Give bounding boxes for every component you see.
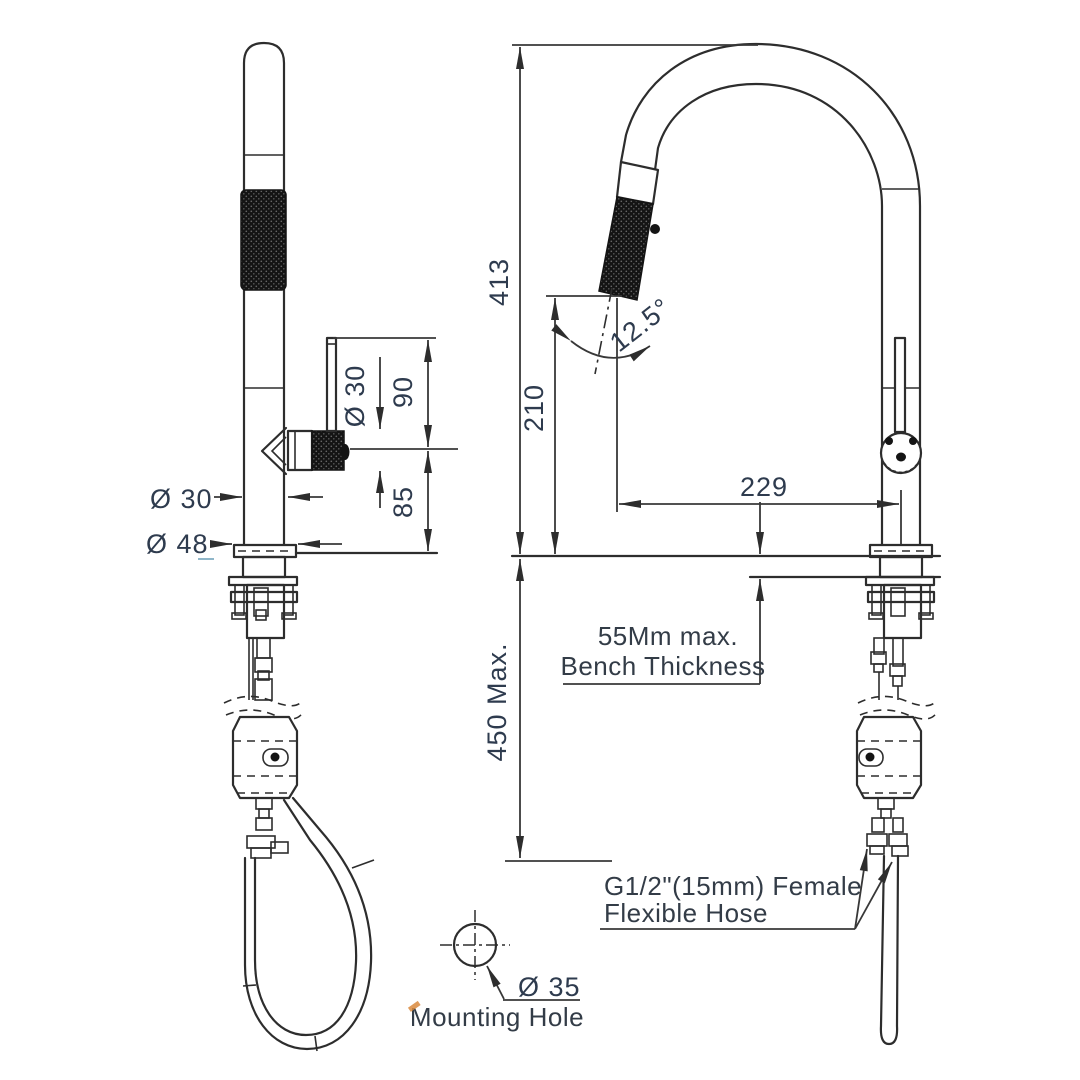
note-flexible-hose-line1: G1/2"(15mm) Female xyxy=(604,871,862,901)
dim-label-handle-diameter: Ø 30 xyxy=(340,365,370,428)
lever-ball-detail-left xyxy=(885,437,893,445)
mounting-hole-detail: Ø 35 Mounting Hole xyxy=(410,910,584,1032)
hose-weight-left xyxy=(233,717,297,798)
dimension-hose-drop: 450 Max. xyxy=(482,559,612,861)
joint-chevron-outer xyxy=(262,428,286,474)
dim-label-body-diameter: Ø 30 xyxy=(150,484,213,514)
dim-label-outlet-height: 210 xyxy=(519,384,549,432)
lever-ball-detail-right xyxy=(909,437,917,445)
dimension-bench-thickness: 55Mm max. Bench Thickness xyxy=(560,502,765,684)
long-flexible-hose xyxy=(881,856,898,1044)
dim-label-spout-reach: 229 xyxy=(740,472,788,502)
handle-knurled-knob xyxy=(312,431,344,470)
dim-label-hose-drop: 450 Max. xyxy=(482,642,512,761)
dimension-body-diameter: Ø 30 xyxy=(150,484,323,514)
dim-label-spray-angle: 12.5° xyxy=(604,292,676,358)
handle-collar xyxy=(288,431,312,470)
lever-rod xyxy=(327,338,336,431)
faucet-dimension-drawing: 413 210 12.5° 229 55Mm max. Bench Thickn… xyxy=(0,0,1080,1080)
dimension-spray-angle: 12.5° xyxy=(571,288,677,512)
underbench-mounting-right xyxy=(866,557,934,700)
spray-button xyxy=(650,224,660,234)
mixer-lever-rod xyxy=(895,338,905,432)
dimension-overall-height: 413 xyxy=(484,45,758,554)
hose-fittings-left xyxy=(247,798,288,858)
note-bench-thickness-line2: Bench Thickness xyxy=(560,651,765,681)
hose-segment-tick-1 xyxy=(352,860,374,868)
note-bench-thickness-line1: 55Mm max. xyxy=(598,621,738,651)
weight-clip-detail xyxy=(271,753,280,762)
wand-body-outline xyxy=(244,43,284,545)
dim-label-overall-height: 413 xyxy=(484,258,514,306)
hose-weight-right xyxy=(857,717,921,798)
dim-label-handle-height: 85 xyxy=(388,486,418,518)
dim-label-lever-span: 90 xyxy=(388,376,418,408)
technical-drawing-page: 413 210 12.5° 229 55Mm max. Bench Thickn… xyxy=(0,0,1080,1080)
underbench-mounting-left xyxy=(229,557,297,700)
handle-knob-tip xyxy=(341,444,350,460)
dim-label-mounting-hole-diameter: Ø 35 xyxy=(518,972,581,1002)
hose-segment-tick-2 xyxy=(243,985,256,986)
dimension-spout-reach: 229 xyxy=(619,472,899,504)
side-view-spray-wand xyxy=(224,43,437,1051)
note-flexible-hose: G1/2"(15mm) Female Flexible Hose xyxy=(600,849,892,929)
note-mounting-hole: Mounting Hole xyxy=(410,1002,584,1032)
spray-head-knurled-grip xyxy=(599,197,653,300)
flexible-hose-ends xyxy=(867,798,908,1044)
break-line-left-1 xyxy=(224,696,303,705)
dim-label-base-diameter: Ø 48 xyxy=(146,529,209,559)
dimension-handle-diameter: Ø 30 xyxy=(340,357,380,508)
note-flexible-hose-line2: Flexible Hose xyxy=(604,898,768,928)
spout-outer-outline xyxy=(621,44,920,545)
wand-knurled-grip xyxy=(241,190,286,290)
dimension-handle-height: 85 xyxy=(388,451,428,551)
lever-ball-detail-center xyxy=(896,453,906,462)
